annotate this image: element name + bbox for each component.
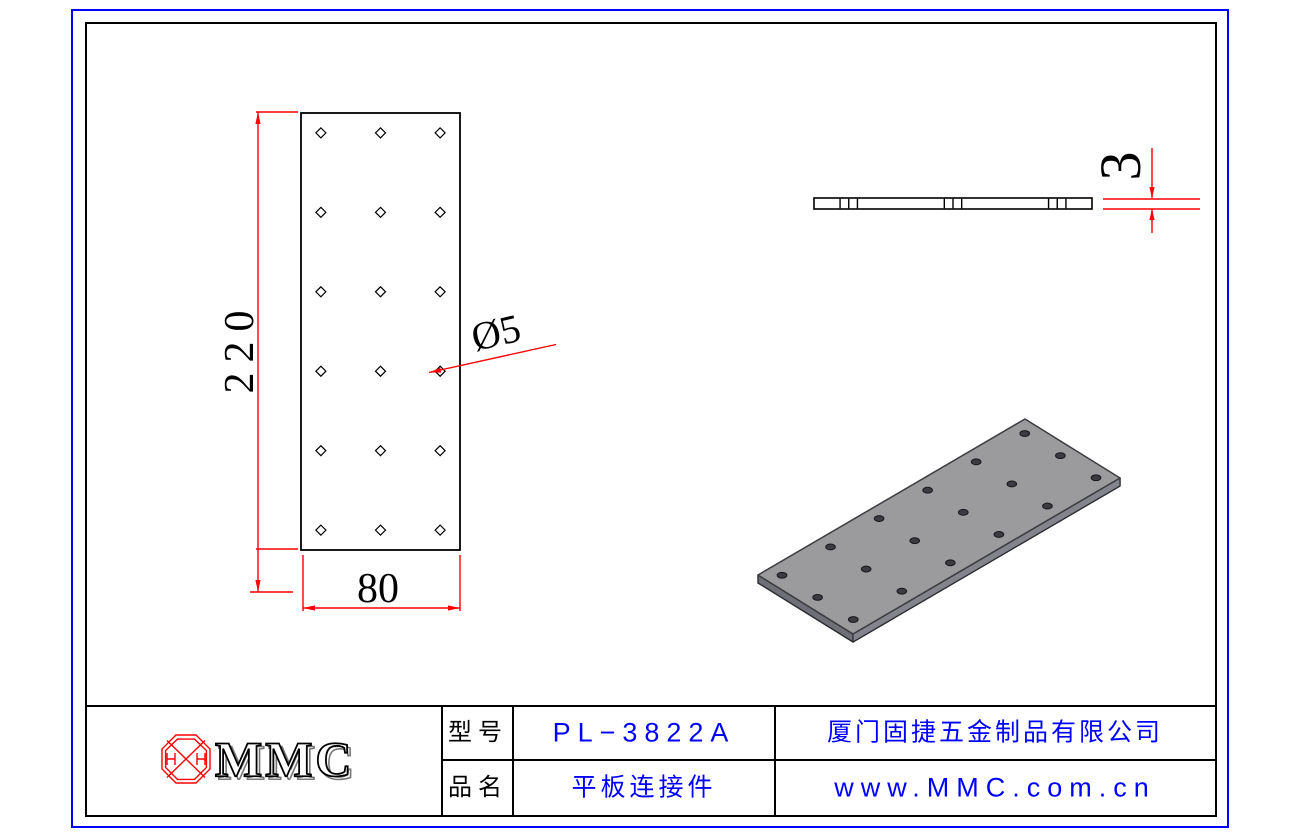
front-view-outline: [301, 113, 460, 550]
iso-hole: [971, 459, 981, 465]
iso-hole: [1043, 503, 1053, 509]
iso-hole: [813, 595, 823, 601]
outer-border: [72, 10, 1228, 827]
mmc-logo-text: MMC: [215, 731, 355, 787]
company-name: 厦门固捷五金制品有限公司: [827, 721, 1163, 746]
dim-text-hole-dia: Ø5: [468, 308, 525, 358]
website: www.MMC.com.cn: [834, 775, 1156, 802]
iso-hole: [910, 538, 920, 544]
iso-hole: [826, 544, 836, 550]
iso-hole: [1091, 475, 1101, 481]
iso-top-face: [758, 419, 1120, 634]
iso-hole: [874, 516, 884, 522]
iso-hole: [994, 532, 1004, 538]
mmc-logo: MMC MMC: [162, 731, 358, 790]
iso-hole: [861, 566, 871, 572]
dim-text-length: 220: [219, 301, 261, 394]
iso-hole: [958, 509, 968, 515]
inner-border: [86, 23, 1216, 816]
product-name-value: 平板连接件: [571, 776, 716, 801]
iso-hole: [777, 572, 787, 578]
iso-hole: [897, 588, 907, 594]
iso-hole: [923, 487, 933, 493]
model-value: PL−3822A: [553, 720, 736, 747]
model-label: 型号: [448, 721, 508, 745]
iso-hole: [1007, 481, 1017, 487]
cad-canvas: MMC MMC: [0, 0, 1300, 840]
iso-hole: [1056, 453, 1066, 459]
iso-hole: [1020, 431, 1030, 437]
iso-view: [758, 419, 1120, 642]
iso-hole: [946, 560, 956, 566]
dim-text-thickness: 3: [1092, 152, 1150, 181]
dim-text-width: 80: [357, 568, 399, 610]
product-name-label: 品名: [448, 776, 508, 800]
drawing-sheet: MMC MMC 220 80 Ø5 3 型号 PL−3822A 厦门固捷五金制品…: [0, 0, 1300, 840]
iso-hole: [848, 617, 858, 623]
mmc-logo-icon: [162, 735, 210, 783]
